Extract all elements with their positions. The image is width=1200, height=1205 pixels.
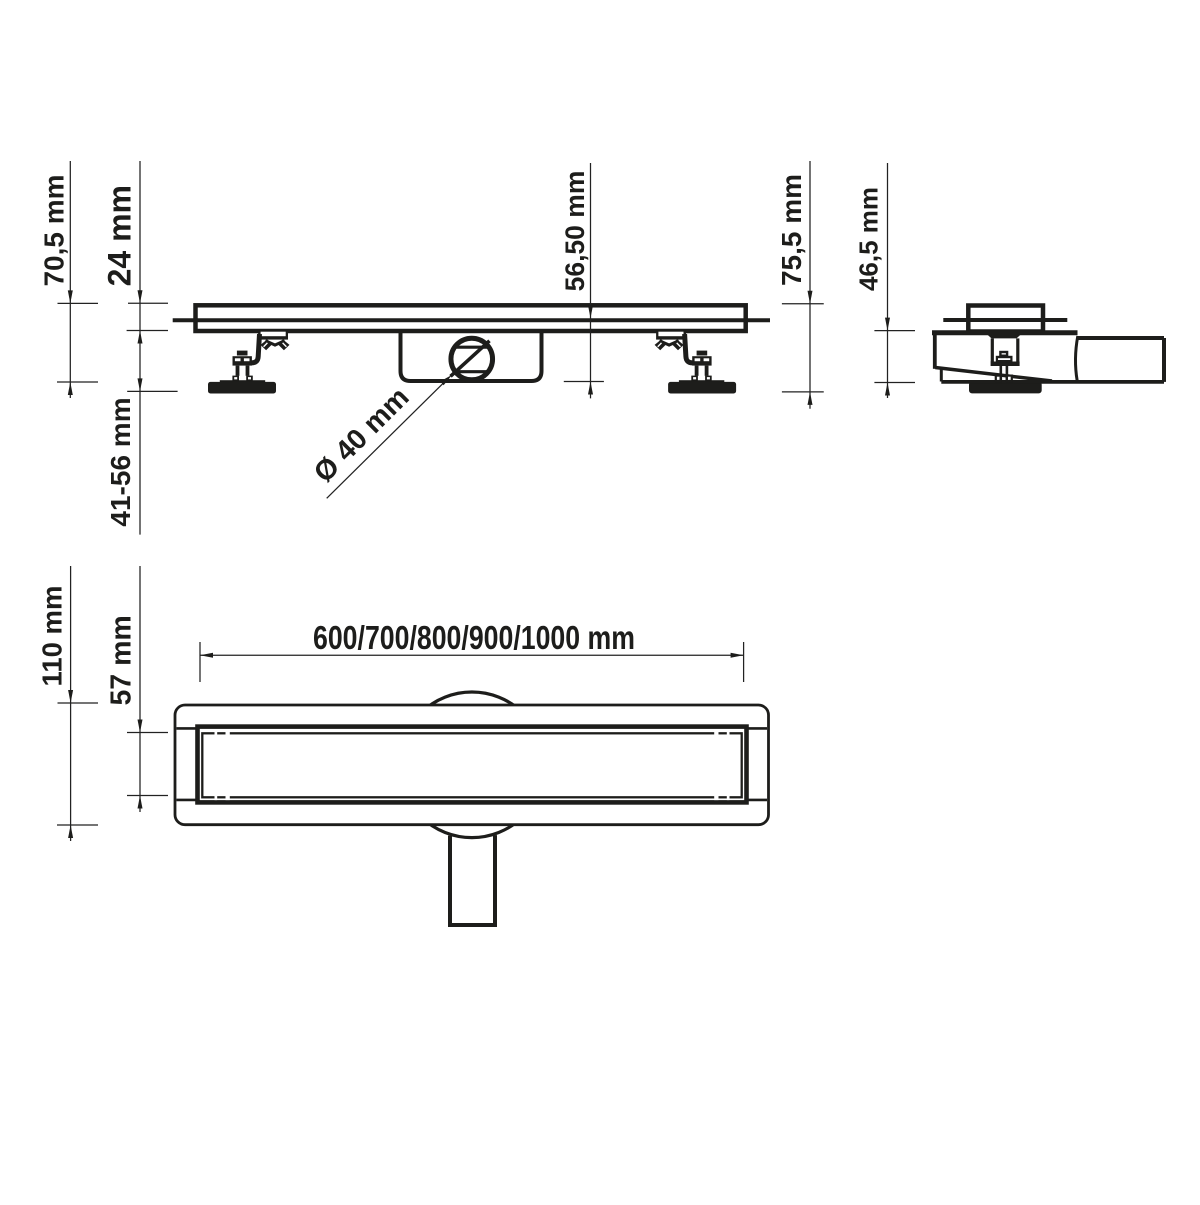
svg-text:41-56 mm: 41-56 mm	[105, 397, 136, 526]
svg-text:46,5 mm: 46,5 mm	[854, 187, 884, 291]
svg-text:75,5 mm: 75,5 mm	[776, 174, 807, 286]
svg-text:56,50 mm: 56,50 mm	[560, 171, 590, 292]
svg-text:600/700/800/900/1000 mm: 600/700/800/900/1000 mm	[313, 619, 635, 656]
svg-text:24 mm: 24 mm	[102, 185, 138, 286]
svg-text:57 mm: 57 mm	[106, 615, 138, 705]
svg-text:70,5 mm: 70,5 mm	[39, 174, 70, 286]
svg-text:110 mm: 110 mm	[37, 586, 68, 687]
